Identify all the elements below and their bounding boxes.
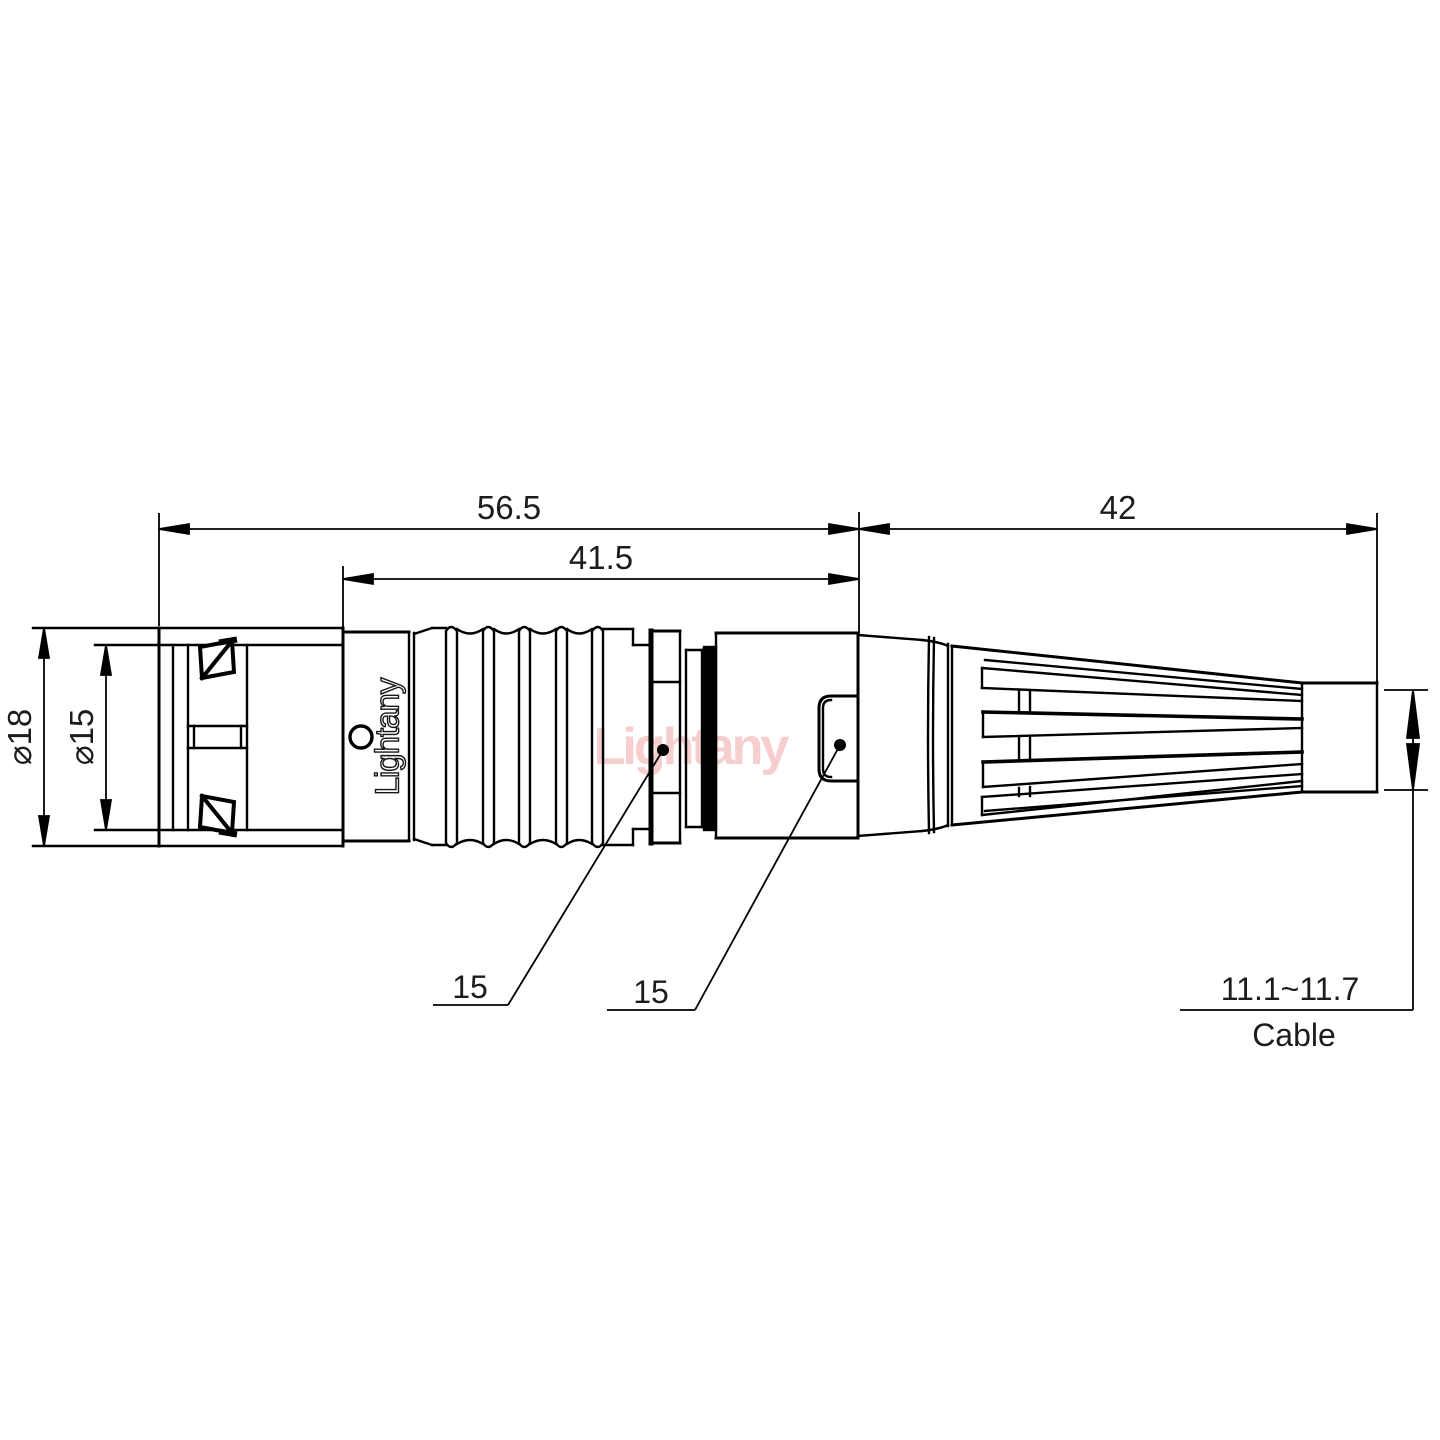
dim-outer-diameter-label: ⌀18 (1, 709, 38, 766)
strain-relief-boot (858, 635, 1377, 836)
drawing-linework (33, 627, 1377, 847)
watermark-text: Lightany (594, 718, 790, 776)
dim-boot-length-label: 42 (1100, 489, 1137, 526)
seal-ring (704, 647, 714, 830)
leader-coupling-band (433, 744, 669, 1005)
key-bottom (200, 796, 234, 834)
dim-cable-diameter (1180, 690, 1428, 1010)
cable-range-label: 11.1~11.7 (1221, 971, 1360, 1007)
connector-technical-drawing: Lightany (0, 0, 1440, 1440)
housing-window (819, 696, 858, 781)
boot-tip (1302, 682, 1377, 792)
dim-overall-length-label: 56.5 (477, 489, 541, 526)
leader-housing-window (607, 739, 846, 1010)
dim-inner-diameter (101, 645, 111, 830)
leader-left-value-label: 15 (452, 969, 488, 1005)
dim-inner-diameter-label: ⌀15 (63, 709, 100, 766)
boot-fins (982, 668, 1302, 815)
leader-right-value-label: 15 (633, 974, 669, 1010)
dim-outer-diameter (39, 628, 49, 846)
cable-word-label: Cable (1252, 1017, 1336, 1053)
technical-drawing-page: Lightany (0, 0, 1440, 1440)
key-top (200, 640, 234, 678)
dim-body-length-label: 41.5 (569, 539, 633, 576)
rib (446, 627, 603, 847)
body-logo-text: Lightany (369, 677, 406, 795)
